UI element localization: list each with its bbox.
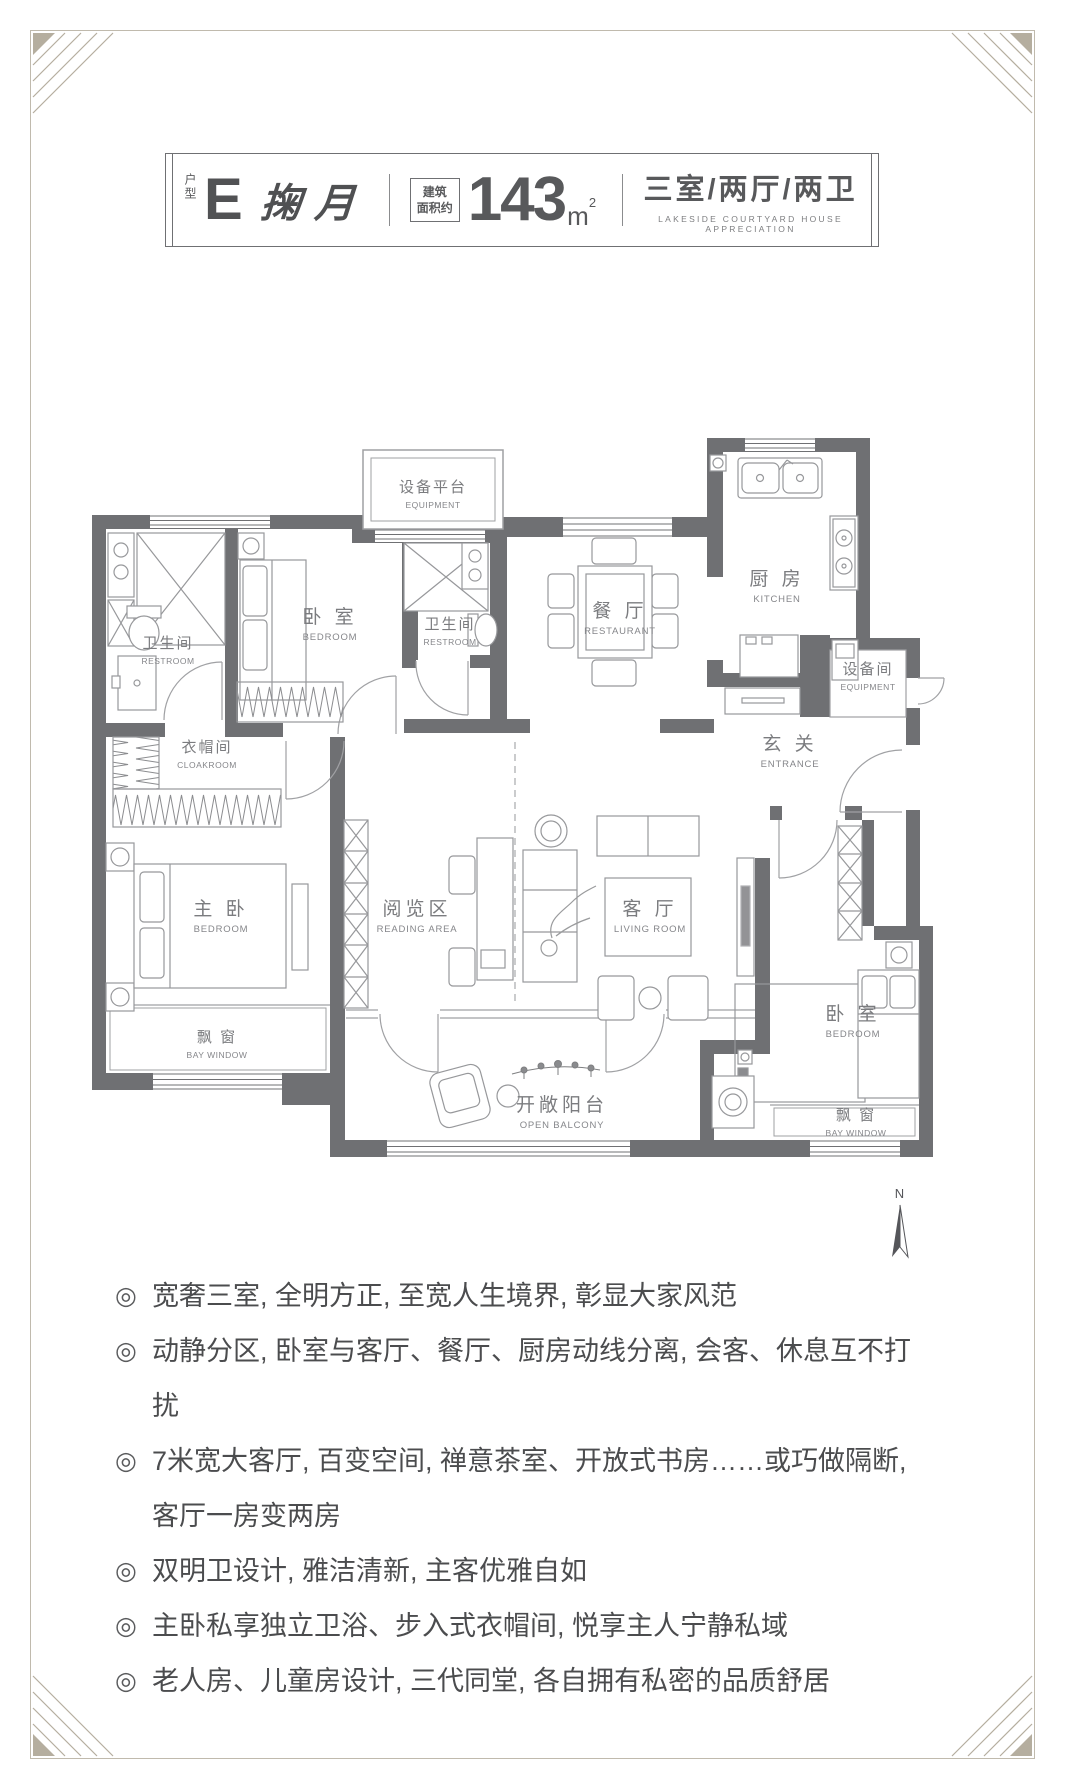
- bullet-icon: ◎: [115, 1654, 152, 1709]
- area-prefix-box: 建筑 面积约: [410, 178, 460, 222]
- unit-name: 掬月: [259, 171, 371, 229]
- bullet-icon: ◎: [115, 1544, 152, 1599]
- corner-ornament-top-left: [31, 31, 123, 123]
- area-prefix-line2: 面积约: [417, 200, 453, 216]
- area-superscript: 2: [589, 195, 596, 210]
- compass-north-label: N: [872, 1186, 928, 1201]
- corner-ornament-bottom-left: [31, 1666, 123, 1758]
- header-right-rule: [871, 154, 872, 246]
- header-divider-1: [389, 174, 390, 226]
- corner-ornament-bottom-right: [942, 1666, 1034, 1758]
- feature-item: ◎双明卫设计, 雅洁清新, 主客优雅自如: [115, 1544, 915, 1599]
- bullet-icon: ◎: [115, 1324, 152, 1434]
- bullet-icon: ◎: [115, 1434, 152, 1544]
- layout-en: LAKESIDE COURTYARD HOUSE APPRECIATION: [623, 214, 878, 234]
- floor-plan-drawing: [85, 380, 945, 1175]
- layout-cn: 三室/两厅/两卫: [623, 166, 878, 208]
- layout-block: 三室/两厅/两卫 LAKESIDE COURTYARD HOUSE APPREC…: [623, 166, 878, 234]
- flower-branch: [512, 1061, 600, 1080]
- corner-ornament-top-right: [942, 31, 1034, 123]
- compass: N: [872, 1186, 928, 1270]
- unit-type-label: 户型: [182, 173, 199, 201]
- compass-needle-icon: [872, 1201, 928, 1265]
- feature-item: ◎主卧私享独立卫浴、步入式衣帽间, 悦享主人宁静私域: [115, 1599, 915, 1654]
- feature-item: ◎宽奢三室, 全明方正, 至宽人生境界, 彰显大家风范: [115, 1269, 915, 1324]
- feature-list: ◎宽奢三室, 全明方正, 至宽人生境界, 彰显大家风范 ◎动静分区, 卧室与客厅…: [115, 1269, 915, 1709]
- area-unit: m2: [567, 195, 596, 232]
- floor-plan: 卫生间RESTROOM 卧 室BEDROOM 设备平台EQUIPMENT 卫生间…: [85, 380, 945, 1175]
- bullet-icon: ◎: [115, 1269, 152, 1324]
- bullet-icon: ◎: [115, 1599, 152, 1654]
- feature-item: ◎老人房、儿童房设计, 三代同堂, 各自拥有私密的品质舒居: [115, 1654, 915, 1709]
- unit-header: 户型 E 掬月 建筑 面积约 143 m2 三室/两厅/两卫 LAKESIDE …: [165, 153, 879, 247]
- feature-item: ◎7米宽大客厅, 百变空间, 禅意茶室、开放式书房……或巧做隔断, 客厅一房变两…: [115, 1434, 915, 1544]
- area-prefix-line1: 建筑: [417, 184, 453, 200]
- feature-item: ◎动静分区, 卧室与客厅、餐厅、厨房动线分离, 会客、休息互不打扰: [115, 1324, 915, 1434]
- header-left-rule: [172, 154, 173, 246]
- area-value: 143: [468, 169, 565, 231]
- unit-letter: E: [204, 171, 243, 229]
